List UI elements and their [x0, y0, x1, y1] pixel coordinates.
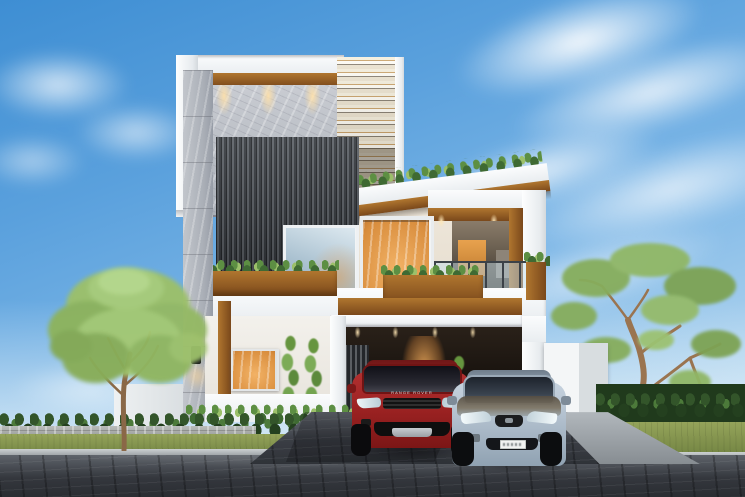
license-plate-characters: [503, 443, 523, 446]
red-suv-hood-badge: RANGE ROVER: [364, 390, 460, 396]
left-tree: [38, 246, 218, 451]
silver-suv: [450, 368, 568, 472]
red-suv-wheel-left: [351, 424, 371, 456]
red-suv-skid-plate: [392, 428, 432, 437]
silver-suv-wheel-left: [452, 432, 474, 466]
silver-suv-mirror-left: [447, 396, 457, 405]
carport-header: [338, 298, 522, 315]
silver-suv-brand-badge: [505, 418, 513, 423]
architectural-render: RANGE ROVER: [0, 0, 745, 497]
ground-window: [233, 351, 277, 389]
planter-box-right: [526, 262, 546, 300]
red-suv-grille: [383, 398, 441, 409]
planter-box-left: [207, 271, 337, 296]
downlights: [208, 85, 342, 145]
red-suv-windshield: [364, 366, 460, 392]
carport-soffit: [330, 315, 522, 327]
red-suv-mirror-left: [347, 384, 356, 393]
silver-suv-mirror-right: [561, 396, 571, 405]
silver-suv-wheel-right: [540, 432, 562, 466]
red-suv-headlight-left: [357, 397, 382, 409]
silver-suv-license-plate: [500, 440, 526, 449]
